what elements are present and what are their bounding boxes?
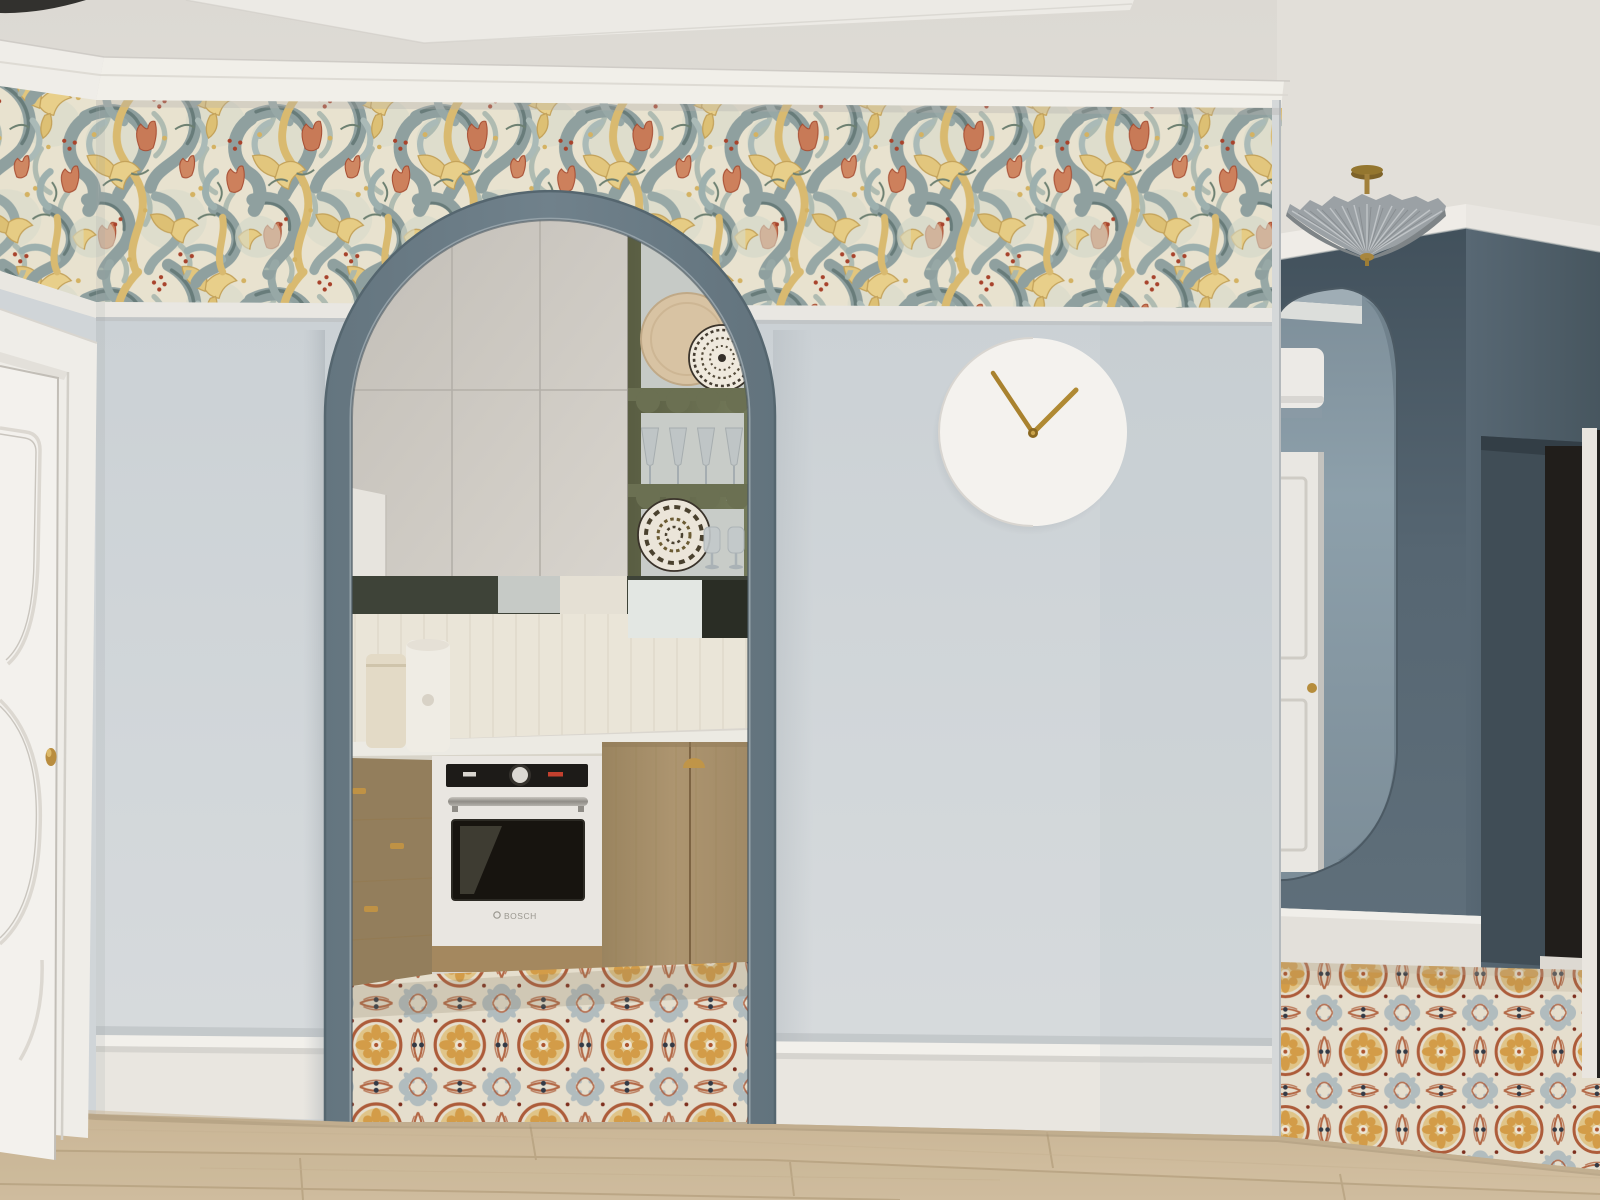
svg-text:BOSCH: BOSCH	[504, 911, 537, 921]
